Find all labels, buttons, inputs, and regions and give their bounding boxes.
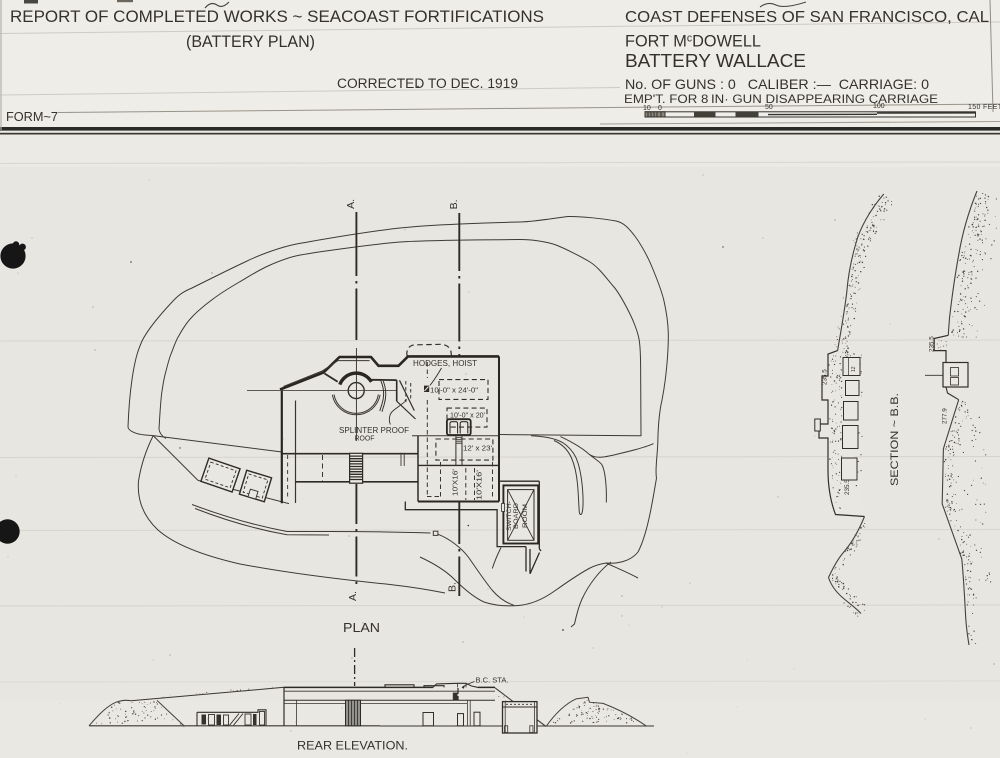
svg-text:50: 50: [765, 104, 773, 111]
svg-text:SPLINTER PROOF: SPLINTER PROOF: [339, 426, 409, 435]
svg-text:BATTERY WALLACE: BATTERY WALLACE: [625, 50, 806, 71]
svg-text:10'X16': 10'X16': [451, 468, 460, 496]
svg-text:235.5: 235.5: [822, 369, 829, 385]
svg-text:(BATTERY PLAN): (BATTERY PLAN): [186, 32, 315, 51]
svg-text:ROOF: ROOF: [355, 436, 375, 443]
svg-text:CORRECTED TO DEC. 1919: CORRECTED TO DEC. 1919: [337, 76, 518, 91]
svg-text:12: 12: [851, 366, 857, 372]
svg-text:0: 0: [658, 105, 662, 112]
svg-text:FORM~7: FORM~7: [6, 109, 58, 124]
svg-text:HODGES, HOIST: HODGES, HOIST: [413, 359, 477, 368]
svg-text:235.5: 235.5: [844, 479, 851, 495]
svg-text:10'X16': 10'X16': [475, 469, 484, 500]
svg-text:EMP'T. FOR 8 IN· GUN DISAPPEAR: EMP'T. FOR 8 IN· GUN DISAPPEARING CARRIA…: [624, 94, 938, 106]
svg-text:10: 10: [643, 105, 651, 112]
svg-text:277.9: 277.9: [942, 408, 949, 424]
svg-text:BOARD: BOARD: [513, 502, 520, 529]
svg-text:235.5: 235.5: [929, 336, 936, 352]
svg-text:REPORT OF COMPLETED WORKS ~ SE: REPORT OF COMPLETED WORKS ~ SEACOAST FOR…: [10, 7, 544, 26]
svg-text:A.: A.: [347, 591, 359, 601]
svg-text:A.: A.: [345, 199, 357, 209]
svg-text:10'-0" x 20': 10'-0" x 20': [450, 411, 486, 420]
svg-text:B.: B.: [448, 200, 460, 210]
svg-text:ROOM: ROOM: [522, 504, 529, 528]
svg-text:FORT McDOWELL: FORT McDOWELL: [625, 32, 761, 51]
svg-text:B.C. STA.: B.C. STA.: [476, 678, 509, 685]
svg-text:SECTION ~ B.B.: SECTION ~ B.B.: [889, 393, 901, 486]
svg-text:REAR ELEVATION.: REAR ELEVATION.: [297, 741, 408, 753]
svg-text:10'-0" x 24'-0": 10'-0" x 24'-0": [430, 385, 478, 394]
svg-text:PLAN: PLAN: [343, 621, 380, 635]
svg-text:SWITCH-: SWITCH-: [506, 501, 513, 531]
svg-text:B.: B.: [447, 582, 459, 592]
svg-text:COAST DEFENSES OF SAN FRANCISC: COAST DEFENSES OF SAN FRANCISCO, CAL: [625, 9, 989, 26]
svg-text:No. OF GUNS : 0 CALIBER :—: No. OF GUNS : 0 CALIBER :— CARRIAGE: 0: [625, 76, 929, 92]
svg-text:150 FEET: 150 FEET: [968, 104, 1000, 111]
svg-text:100: 100: [873, 103, 885, 110]
svg-text:12' x 23': 12' x 23': [463, 444, 493, 453]
